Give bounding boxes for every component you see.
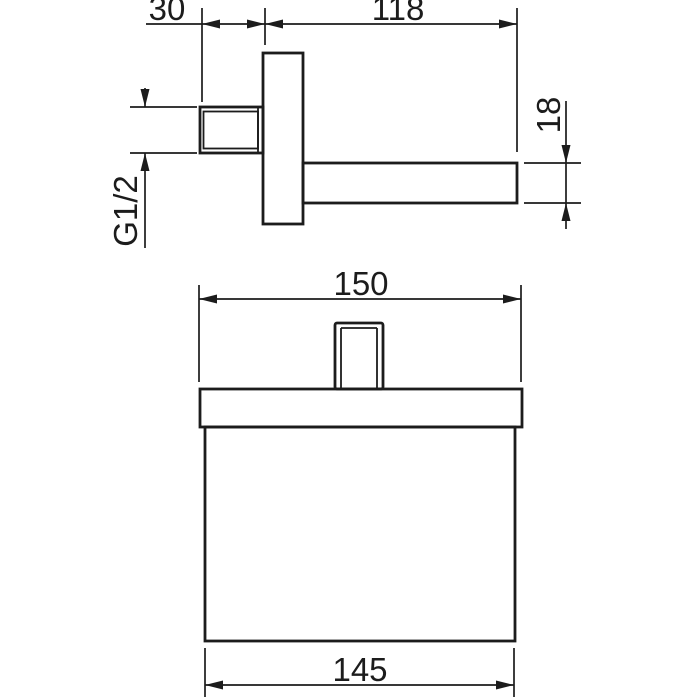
dim-label-150: 150 — [333, 265, 388, 302]
nipple-outer — [335, 323, 383, 389]
arrowhead-right — [247, 20, 265, 29]
dim-label-18: 18 — [530, 97, 567, 134]
arrowhead-down — [562, 145, 571, 163]
front-view: 150 145 — [199, 265, 522, 697]
thread-nipple-front — [335, 323, 383, 389]
technical-drawing-canvas: 30 118 G1/2 — [0, 0, 700, 700]
arrowhead-right — [503, 295, 521, 304]
arrowhead-left — [205, 681, 223, 690]
nipple-outer — [200, 107, 263, 153]
arrowhead-left — [199, 295, 217, 304]
dimension-145: 145 — [205, 648, 514, 697]
dim-label-30: 30 — [149, 0, 186, 27]
dimension-30-118: 30 118 — [146, 0, 517, 152]
arrowhead-down — [141, 89, 150, 107]
arrowhead-left — [202, 20, 220, 29]
dim-label-g12: G1/2 — [107, 175, 144, 247]
dim-label-145: 145 — [332, 651, 387, 688]
nipple-thread-root — [204, 112, 259, 149]
arrowhead-left — [265, 20, 283, 29]
mounting-plate-front — [200, 389, 522, 427]
wall-plate-side — [263, 53, 303, 224]
dimension-18: 18 — [524, 97, 581, 229]
dimension-g12: G1/2 — [107, 88, 197, 248]
side-view: 30 118 G1/2 — [107, 0, 581, 248]
thread-nipple-side — [200, 107, 263, 153]
drawing-page: 30 118 G1/2 — [0, 0, 700, 700]
support-arm-side — [303, 163, 517, 203]
arrowhead-up — [141, 153, 150, 171]
dim-label-118: 118 — [372, 0, 425, 27]
arrowhead-right — [499, 20, 517, 29]
body-front — [205, 427, 515, 641]
arrowhead-right — [496, 681, 514, 690]
arrowhead-up — [562, 203, 571, 221]
